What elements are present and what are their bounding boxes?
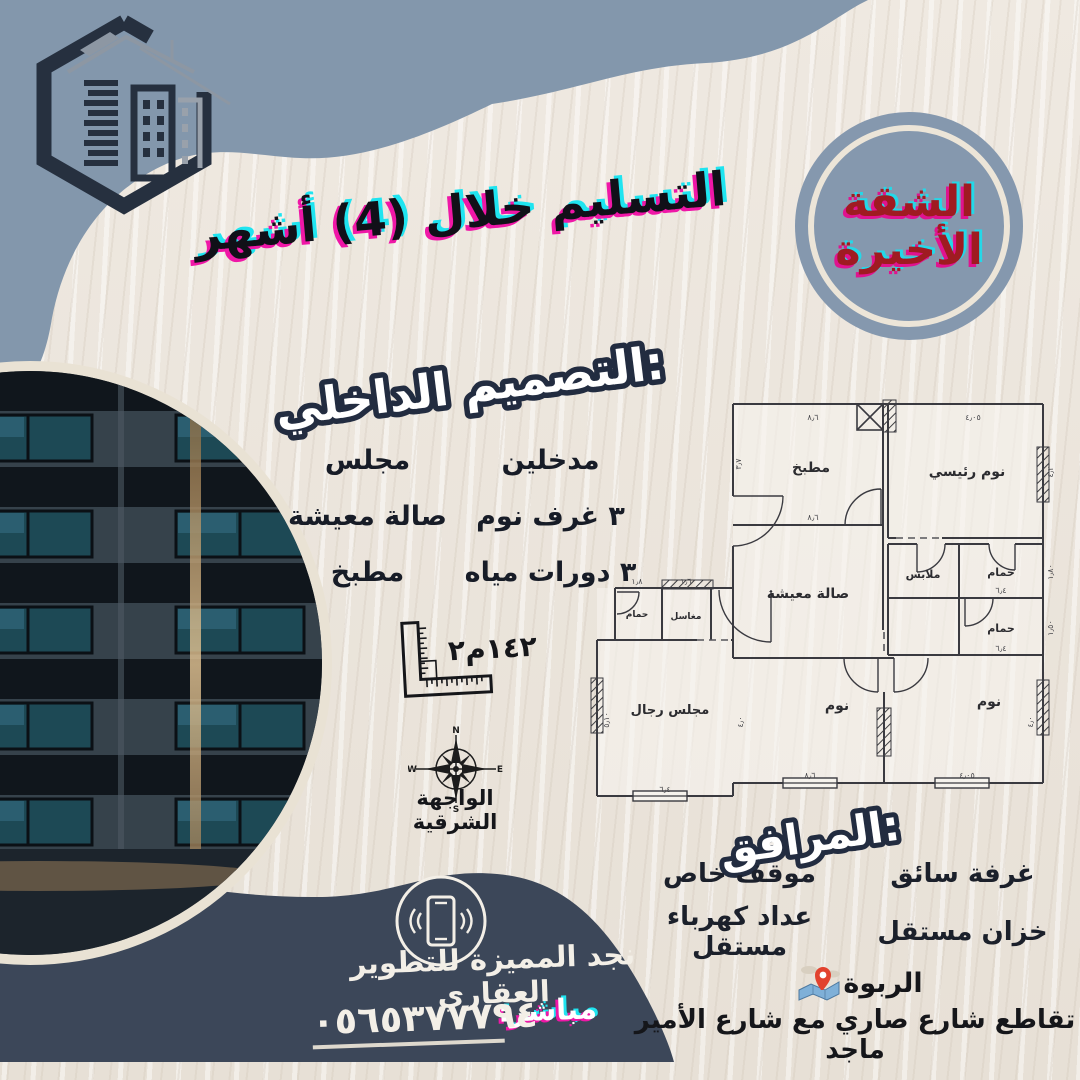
last-apartment-badge: الشقة الأخيرة: [795, 112, 1023, 340]
room-label: ملابس: [906, 568, 941, 581]
room-label: نوم: [977, 694, 1001, 710]
floor-plan: مطبخ نوم رئيسي صالة معيشة ملابس حمام حما…: [585, 392, 1080, 805]
district-row: الربوة: [760, 962, 960, 1004]
room-label: حمام: [987, 566, 1015, 579]
room-label: نوم رئيسي: [929, 464, 1006, 480]
dim-label: ١٫٦: [680, 577, 691, 586]
compass-n: N: [452, 726, 460, 736]
room-label: حمام: [987, 622, 1015, 635]
dim-label: ٦٫٤: [995, 644, 1006, 653]
dim-label: ٨٫٦: [807, 513, 818, 522]
dim-label: ١٫٥٠: [1046, 620, 1055, 636]
dim-label: ٥٫١٠: [602, 712, 611, 728]
interior-item: مطبخ: [276, 557, 459, 588]
address-line: تقاطع شارع صاري مع شارع الأمير ماجد: [630, 1005, 1080, 1065]
dim-label: ٨٫٦: [807, 413, 818, 422]
dim-label: ٦٫٤: [659, 785, 670, 794]
dim-label: ٨٫٦: [804, 771, 815, 780]
company-logo: [22, 8, 237, 233]
dim-label: ٤٫٠: [1026, 716, 1035, 727]
facility-item: خزان مستقل: [851, 917, 1074, 947]
dim-label: ٣٫٧: [734, 458, 743, 470]
dim-label: ٦٫٤: [995, 586, 1006, 595]
dim-label: ١٫٨٠: [1046, 564, 1055, 580]
interior-item: صالة معيشة: [276, 501, 459, 532]
facility-item: موقف خاص: [628, 859, 851, 889]
badge-line1: الشقة: [843, 178, 975, 226]
poster-canvas: الشقة الأخيرة التسليم خلال (4) أشهر: [0, 0, 1080, 1080]
badge-line2: الأخيرة: [835, 226, 982, 274]
district-name: الربوة: [843, 968, 922, 999]
dim-label: ٤٫٠: [736, 716, 745, 727]
compass-e: E: [497, 765, 503, 775]
room-label: مطبخ: [792, 460, 830, 476]
dim-label: ١٫٨: [631, 577, 643, 586]
map-pin-icon: [797, 962, 841, 1004]
compass-w: W: [408, 765, 417, 775]
room-label: حمام: [626, 610, 649, 620]
room-label: مغاسل: [671, 612, 702, 622]
interior-item: مجلس: [276, 445, 459, 476]
facade-direction-caption: الواجهة الشرقية: [380, 786, 530, 834]
room-label: نوم: [825, 698, 849, 714]
facility-item: غرفة سائق: [851, 859, 1074, 889]
dim-label: ٤٫٢: [1046, 466, 1055, 477]
area-value: ١٤٢م٢: [447, 630, 538, 668]
room-label: صالة معيشة: [767, 586, 849, 602]
facilities-list: غرفة سائق موقف خاص خزان مستقل عداد كهربا…: [628, 852, 1074, 968]
dim-label: ٤٫٠٥: [965, 413, 981, 422]
phone-number: ٠٥٦٥٣٧٧٧٩٤: [311, 994, 505, 1050]
room-label: مجلس رجال: [631, 703, 710, 718]
dim-label: ٤٫٠٥: [959, 771, 975, 780]
